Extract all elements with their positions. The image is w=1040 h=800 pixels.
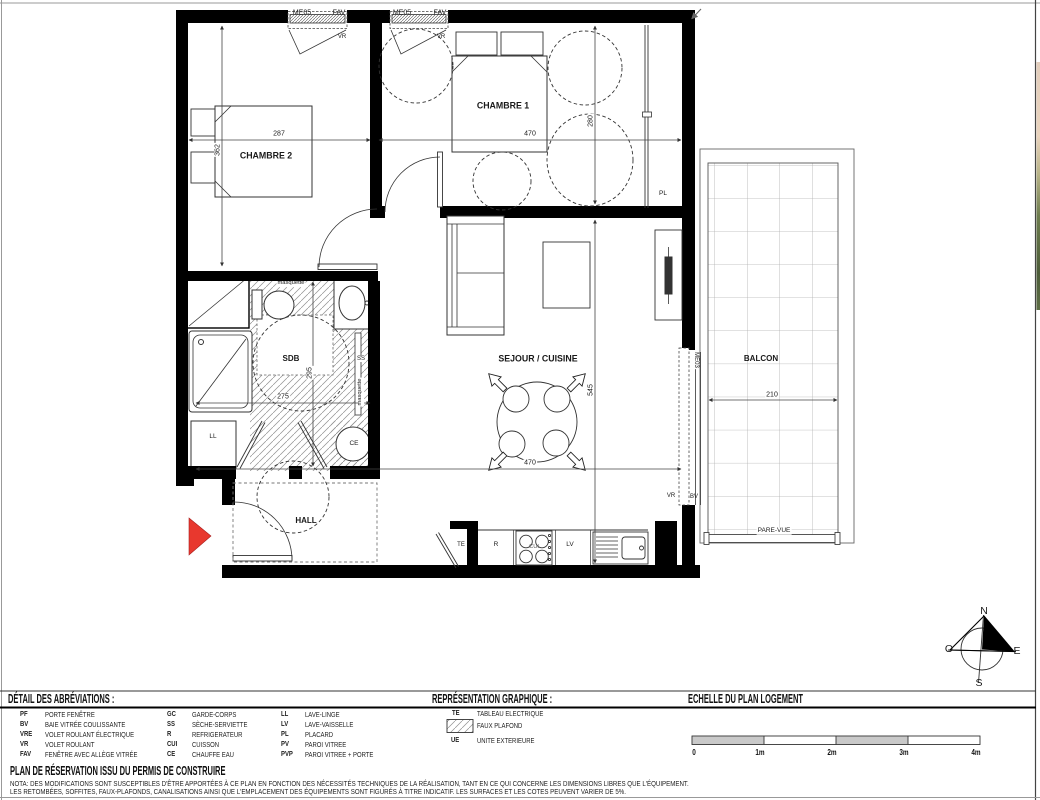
abbr-label: CHAUFFE EAU: [192, 752, 234, 759]
dim-sdb-width: 275: [276, 394, 290, 401]
compass-west-label: O: [945, 644, 953, 655]
window2-shutter-label: VR: [437, 34, 445, 40]
room-label-chambre2: CHAMBRE 2: [240, 152, 292, 161]
room-label-sejour-cuisine: SEJOUR / CUISINE: [498, 355, 577, 364]
graphics-ue-code: UE: [451, 737, 459, 744]
abbr-label: LAVE-VAISSELLE: [305, 722, 353, 729]
abbr-code: GC: [167, 711, 176, 718]
scale-tick-3m: 3m: [899, 749, 908, 757]
abbr-label: CUISSON: [192, 742, 219, 749]
legend-graphics-title: REPRÉSENTATION GRAPHIQUE :: [432, 693, 552, 706]
footer-title: PLAN DE RÉSERVATION ISSU DU PERMIS DE CO…: [10, 765, 225, 778]
balcony-door-bv-label: BV: [690, 494, 698, 500]
dim-chambre1-depth: 280: [588, 114, 595, 128]
abbr-code: CE: [167, 751, 175, 758]
lave-vaisselle-label: LV: [566, 542, 573, 549]
balcony-door-vr-label: VR: [667, 493, 675, 499]
room-label-chambre1: CHAMBRE 1: [477, 102, 529, 111]
room-label-hall: HALL: [295, 517, 316, 525]
abbr-code: SS: [167, 721, 175, 728]
legend-scale-title: ECHELLE DU PLAN LOGEMENT: [688, 693, 803, 706]
scale-tick-4m: 4m: [971, 749, 980, 757]
legend-abbreviations-title: DÉTAIL DES ABRÉVIATIONS :: [8, 693, 114, 706]
masquette-top-label: masquette: [276, 281, 305, 287]
abbr-code: LL: [281, 711, 288, 718]
graphics-ue-label: UNITE EXTERIEURE: [477, 738, 535, 745]
window2-code-label: ME05: [393, 10, 411, 17]
abbr-label: FENÊTRE AVEC ALLÈGE VITRÉE: [45, 752, 137, 759]
abbr-label: VOLET ROULANT ÉLECTRIQUE: [45, 732, 134, 739]
abbr-label: VOLET ROULANT: [45, 742, 94, 749]
abbr-label: PORTE FENÊTRE: [45, 712, 95, 719]
compass-south-label: S: [975, 678, 982, 689]
seche-serviette-label: SS: [356, 356, 366, 362]
dim-sdb-depth: 295: [307, 366, 314, 380]
graphics-te-code: TE: [452, 710, 460, 717]
compass-north-label: N: [980, 606, 988, 617]
abbr-code: FAV: [20, 751, 31, 758]
abbr-label: REFRIGERATEUR: [192, 732, 242, 739]
scale-tick-0: 0: [692, 749, 696, 757]
abbr-code: R: [167, 731, 171, 738]
graphics-te-label: TABLEAU ELECTRIQUE: [477, 711, 543, 718]
footer-nota-line2: LES RETOMBÉES, SOFFITES, FAUX-PLAFONDS, …: [10, 789, 626, 796]
window1-shutter-label: VR: [338, 34, 346, 40]
dim-sejour-width: 470: [523, 460, 537, 467]
room-label-balcon: BALCON: [744, 355, 778, 363]
placard-label: PL: [659, 191, 667, 198]
abbr-code: PF: [20, 711, 28, 718]
abbr-code: PVP: [281, 751, 293, 758]
dim-chambre1-width: 470: [523, 131, 537, 138]
window2-type-label: FAV: [434, 10, 447, 17]
chauffe-eau-label: CE: [349, 441, 358, 448]
refrigerateur-label: R: [494, 542, 499, 549]
compass-east-label: E: [1013, 646, 1020, 657]
abbr-label: BAIE VITRÉE COULISSANTE: [45, 722, 125, 729]
cuisson-label: CUI: [529, 545, 539, 551]
window1-type-label: FAV: [333, 10, 346, 17]
footer-nota-line1: NOTA: DES MODIFICATIONS SONT SUSCEPTIBLE…: [10, 781, 689, 788]
lave-linge-label: LL: [209, 434, 216, 441]
abbr-label: PAROI VITREE + PORTE: [305, 752, 373, 759]
scale-tick-1m: 1m: [755, 749, 764, 757]
abbr-code: PV: [281, 741, 289, 748]
dim-chambre2-width: 287: [272, 131, 286, 138]
masquette-side-label: masquette: [358, 377, 364, 406]
pare-vue-label: PARE-VUE: [757, 528, 792, 535]
abbr-code: VR: [20, 741, 28, 748]
graphics-faux-plafond-label: FAUX PLAFOND: [477, 723, 522, 730]
dim-balcon-width: 210: [765, 392, 779, 399]
tableau-electrique-label: TE: [457, 542, 465, 548]
abbr-label: LAVE-LINGE: [305, 712, 340, 719]
abbr-code: LV: [281, 721, 288, 728]
scale-tick-2m: 2m: [827, 749, 836, 757]
abbr-code: VRE: [20, 731, 32, 738]
room-label-sdb: SDB: [282, 355, 301, 363]
dim-chambre2-depth: 362: [215, 143, 222, 157]
abbr-label: PLACARD: [305, 732, 333, 739]
abbr-label: PAROI VITREE: [305, 742, 346, 749]
abbr-label: SÈCHE-SERVIETTE: [192, 722, 247, 729]
balcony-door-code-label: ME03: [693, 351, 699, 369]
abbr-label: GARDE-CORPS: [192, 712, 236, 719]
abbr-code: BV: [20, 721, 28, 728]
abbr-code: CUI: [167, 741, 177, 748]
floor-plan-page: ME05 FAV VR ME05 FAV VR CHAMBRE 1 CHAMBR…: [0, 0, 1040, 800]
abbr-code: PL: [281, 731, 289, 738]
window1-code-label: ME05: [293, 10, 311, 17]
dim-sejour-depth: 545: [588, 383, 595, 397]
labels-layer: ME05 FAV VR ME05 FAV VR CHAMBRE 1 CHAMBR…: [0, 0, 1040, 800]
